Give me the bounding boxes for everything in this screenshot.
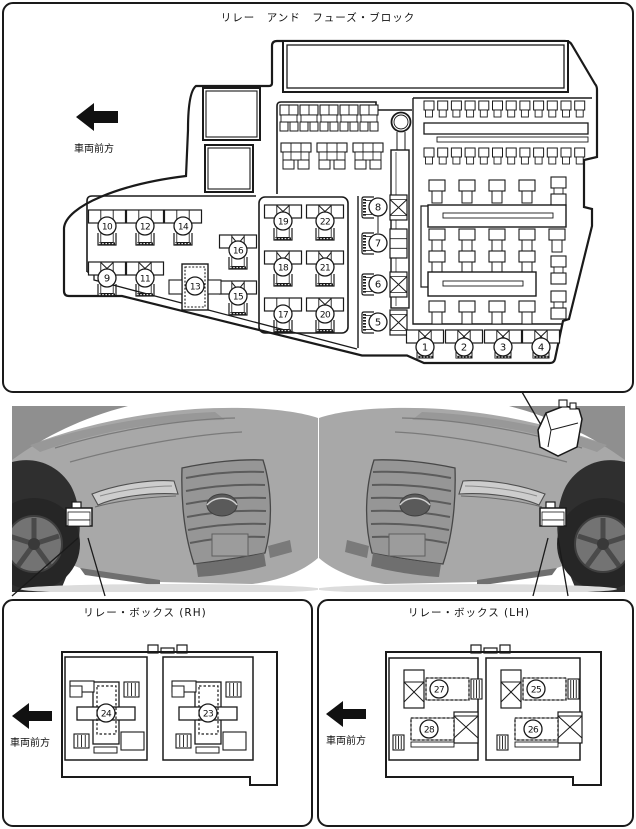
- callout-24: 24: [101, 710, 112, 720]
- callout-12: 12: [140, 223, 150, 233]
- vehicle-views: [0, 392, 636, 596]
- callout-16: 16: [233, 247, 244, 257]
- callout-18: 18: [278, 264, 289, 274]
- callout-25: 25: [531, 686, 541, 696]
- top-panel: リレー アンド フューズ・ブロック 車両前方 10121491116151922…: [3, 3, 633, 392]
- callout-8: 8: [375, 203, 381, 214]
- callout-1: 1: [422, 343, 428, 354]
- callout-22: 22: [320, 218, 330, 228]
- callout-20: 20: [320, 311, 331, 321]
- rh-panel-title: リレー・ボックス (RH): [83, 607, 206, 619]
- callout-19: 19: [278, 218, 289, 228]
- callout-27: 27: [434, 686, 444, 696]
- main-title: リレー アンド フューズ・ブロック: [221, 11, 416, 24]
- callout-15: 15: [233, 293, 243, 303]
- callout-7: 7: [375, 239, 381, 250]
- car-front-lh-view: [317, 406, 636, 594]
- callout-17: 17: [278, 311, 288, 321]
- callout-11: 11: [140, 275, 150, 285]
- callout-6: 6: [375, 280, 381, 291]
- callout-28: 28: [424, 726, 435, 736]
- callout-13: 13: [190, 283, 200, 293]
- callout-2: 2: [461, 343, 467, 354]
- lh-front-direction-label: 車両前方: [326, 734, 366, 747]
- callout-3: 3: [500, 343, 506, 354]
- diagram-scene: リレー アンド フューズ・ブロック 車両前方 10121491116151922…: [0, 0, 636, 829]
- callout-14: 14: [178, 223, 189, 233]
- front-direction-label: 車両前方: [74, 142, 114, 155]
- rh-front-direction-label: 車両前方: [10, 736, 50, 749]
- callout-23: 23: [203, 710, 213, 720]
- page: リレー アンド フューズ・ブロック 車両前方 10121491116151922…: [0, 0, 636, 829]
- callout-26: 26: [528, 726, 539, 736]
- rh-panel: リレー・ボックス (RH) 車両前方 2423: [3, 600, 312, 826]
- car-front-rh-view: [0, 406, 320, 594]
- callout-10: 10: [102, 223, 113, 233]
- callout-4: 4: [538, 343, 544, 354]
- lh-panel-title: リレー・ボックス (LH): [408, 607, 530, 619]
- callout-21: 21: [320, 264, 330, 274]
- callout-5: 5: [375, 318, 381, 329]
- lh-panel: リレー・ボックス (LH) 車両前方 27252826: [318, 600, 633, 826]
- callout-9: 9: [104, 274, 110, 285]
